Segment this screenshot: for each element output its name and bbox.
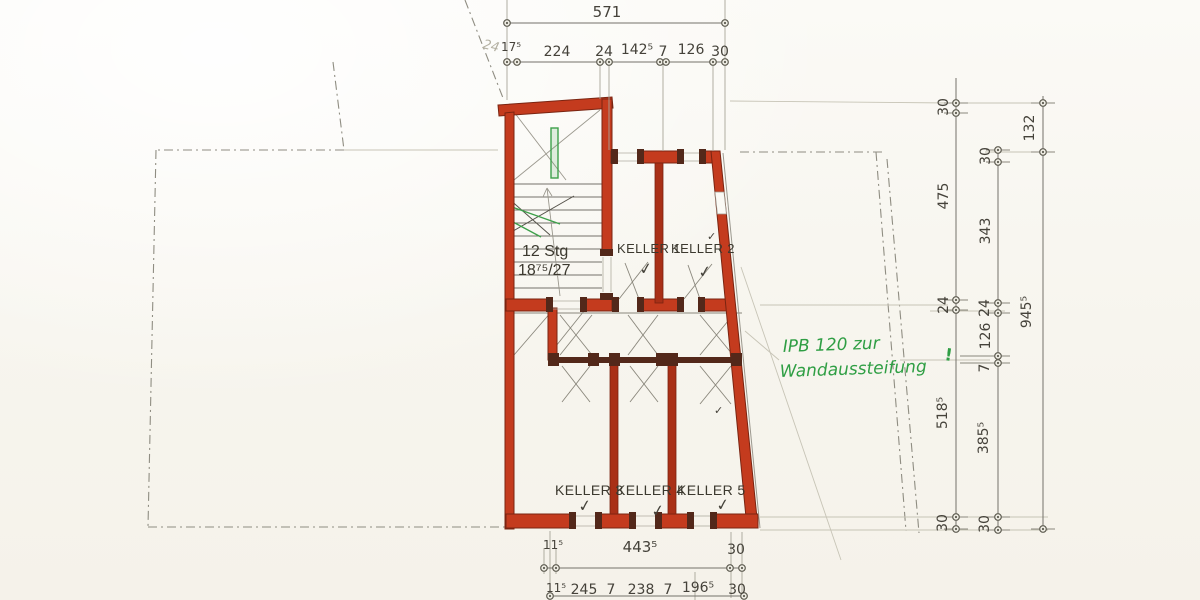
stair-lower-door-lines [508,196,574,235]
dim-label: 30 [728,582,746,598]
dim-label: 945⁵ [1019,296,1035,328]
dim-label: 30 [978,147,994,165]
door-posts [546,149,742,529]
dim-label: 24 [977,299,993,317]
partition-walls [610,163,676,514]
room-label-keller4: KELLER 4 [616,482,685,498]
dim-label: 126 [678,42,705,58]
dim-label: 11⁵ [546,581,566,595]
dim-label: 7 [607,582,616,598]
revision-note: IPB 120 zur Wandaussteifung ! [779,334,953,382]
dim-label: 30 [711,44,729,60]
dim-label: 7 [659,44,668,60]
dim-label: 245 [571,582,598,598]
scanned-floor-plan-page: 12 Stg 18⁷⁵/27 KELLER 1 KELLER 2 KELLER … [0,0,1200,600]
stair-label: 12 Stg [522,243,568,260]
dim-label: 7 [664,582,673,598]
dim-label: 443⁵ [623,538,658,556]
opening-jamb-lines [553,153,710,526]
dim-label: 224 [544,44,571,60]
dim-label: 196⁵ [682,580,714,596]
room-label-keller2: KELLER 2 [671,241,735,256]
note-line1: IPB 120 zur [782,334,881,357]
ipb-beam [552,357,742,363]
floor-plan-svg: 12 Stg 18⁷⁵/27 KELLER 1 KELLER 2 KELLER … [0,0,1200,600]
check-icon: ✓ [714,404,723,417]
dim-label: 30 [727,542,745,558]
check-icon: ✓ [577,495,593,516]
dim-label: 126 [978,323,994,350]
stair-green-revision-marks [512,128,560,237]
dim-label: 30 [977,515,993,533]
note-exclamation: ! [943,345,953,366]
dim-label: 518⁵ [935,397,951,429]
dim-label: 24 [936,296,952,314]
check-icon: ✓ [638,258,654,279]
corner-pencil-note: 24 [481,37,501,56]
right-dimension-labels: 30 475 24 518⁵ 30 30 343 24 126 7 385⁵ 3… [935,98,1038,533]
dim-label: 238 [628,582,655,598]
dim-top-overall: 571 [593,3,622,21]
slant-wall-window-opening [715,192,726,214]
dim-label: 30 [935,514,951,532]
dim-label: 142⁵ [621,42,653,58]
dim-label: 17⁵ [501,40,521,54]
dim-label: 132 [1022,115,1038,142]
dim-label: 343 [978,218,994,245]
dim-label: 24 [595,44,613,60]
room-label-keller5: KELLER 5 [677,482,746,498]
dim-label: 30 [936,98,952,116]
dim-label: 385⁵ [976,422,992,454]
check-icon: ✓ [715,494,731,515]
door-swing-lines [512,262,742,404]
dim-label: 475 [936,183,952,210]
check-icon: ✓ [650,500,666,521]
check-icon: ✓ [697,261,713,282]
check-icon: ✓ [707,230,716,243]
stair-rise-run-label: 18⁷⁵/27 [518,262,571,279]
dim-label: 7 [977,364,993,373]
note-line2: Wandaussteifung [779,357,927,382]
dim-label: 11⁵ [543,538,563,552]
top-dimension-labels: 571 17⁵ 224 24 142⁵ 7 126 30 [501,3,729,60]
